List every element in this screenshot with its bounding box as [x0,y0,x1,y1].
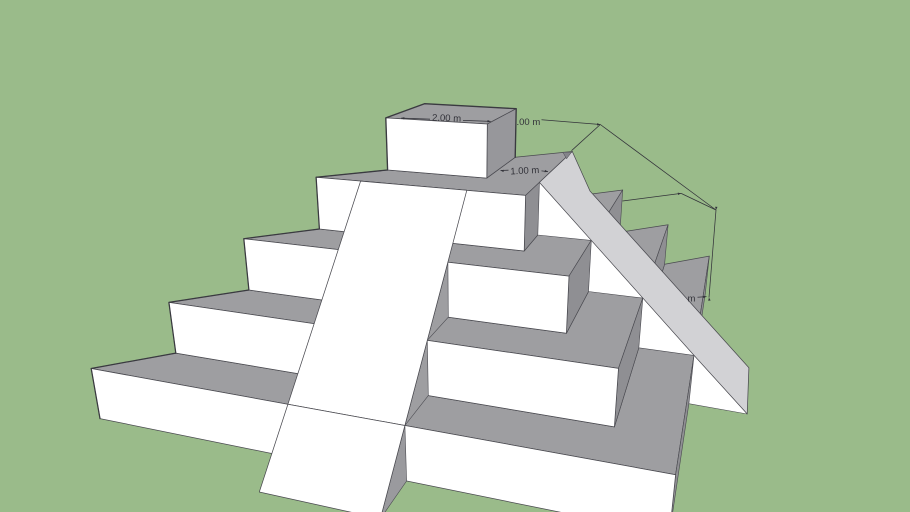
svg-text:.00 m: .00 m [517,117,541,128]
svg-text:2.00 m: 2.00 m [432,113,461,125]
svg-text:1.00 m: 1.00 m [510,165,540,178]
svg-text:m: m [688,294,696,305]
